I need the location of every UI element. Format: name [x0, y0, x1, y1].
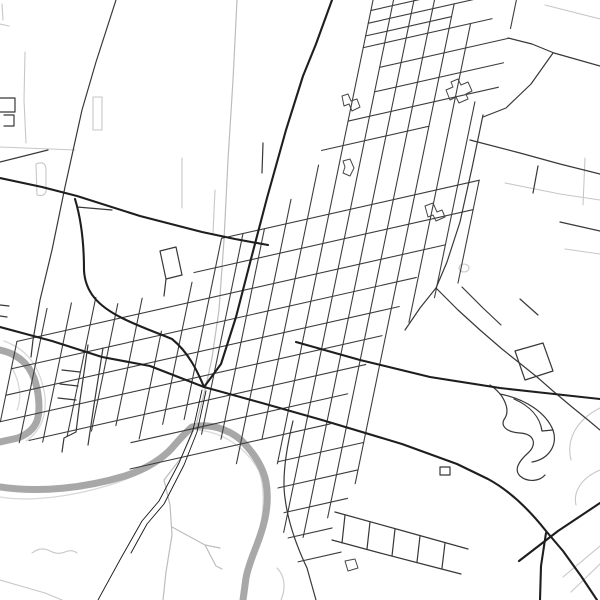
street-grid-street [236, 199, 291, 463]
med-roads-segment [500, 394, 554, 462]
med-roads-segment [0, 316, 7, 317]
major-roads-segment [519, 503, 600, 561]
med-roads-segment [520, 299, 538, 315]
minor-roads-segment [277, 568, 284, 600]
med-roads-segment [392, 529, 395, 556]
minor-roads-segment [505, 183, 600, 200]
building-outlines-segment [446, 79, 472, 103]
med-roads-segment [470, 140, 600, 174]
med-roads-segment [514, 399, 553, 431]
waterbank-segment [12, 368, 20, 410]
med-roads-segment [367, 522, 370, 549]
street-grid-street [17, 245, 445, 342]
minor-roads-segment [565, 249, 600, 254]
med-roads-segment [560, 222, 600, 231]
med-roads-segment [0, 305, 9, 306]
layer-minor-roads [0, 4, 600, 600]
minor-roads-segment [0, 24, 9, 26]
layer-major-roads [0, 0, 600, 600]
street-grid-street [288, 528, 332, 538]
minor-roads-segment [545, 5, 600, 19]
med-roads-segment [262, 143, 263, 173]
street-grid-street [322, 126, 429, 150]
street-grid-street [278, 442, 364, 461]
water-segment [0, 426, 267, 600]
med-roads-segment [442, 543, 445, 568]
street-grid-street [194, 210, 473, 273]
street-grid-street [278, 470, 358, 488]
med-roads-segment [58, 398, 76, 400]
med-roads-segment [77, 207, 112, 210]
minor-roads-segment [213, 190, 215, 233]
building-outlines-segment [342, 94, 360, 111]
map-poster [0, 0, 600, 600]
street-grid-street [92, 304, 118, 431]
minor-roads-segment [0, 580, 62, 600]
med-roads-segment [440, 467, 450, 475]
street-grid-street [380, 38, 509, 67]
building-outlines-segment [345, 559, 358, 571]
med-roads-segment [483, 53, 553, 117]
med-roads-segment [88, 348, 103, 445]
building-outlines-segment [425, 203, 445, 221]
layer-med-roads [0, 0, 600, 600]
light-roads-segment [172, 527, 220, 548]
med-roads-segment [60, 384, 78, 386]
major-roads-segment [0, 178, 268, 245]
med-roads-segment [62, 370, 80, 372]
minor-roads-segment [24, 52, 26, 143]
light-roads-segment [205, 545, 222, 569]
street-grid-street [284, 498, 347, 512]
street-grid-street [355, 4, 454, 484]
street-grid-street [366, 17, 452, 36]
street-grid-street [348, 87, 498, 121]
minor-roads-segment [36, 163, 46, 196]
street-grid-street [67, 297, 96, 436]
med-roads-segment [31, 0, 116, 357]
med-roads-segment [332, 540, 461, 574]
minor-roads-segment [32, 549, 77, 553]
med-roads-segment [164, 279, 166, 296]
street-grid-street [11, 278, 416, 369]
med-roads-segment [335, 512, 468, 549]
street-grid-street [262, 165, 319, 439]
street-grid-street [221, 229, 264, 439]
building-outlines-segment [343, 159, 354, 176]
minor-roads-segment [93, 97, 102, 130]
street-grid-street [43, 303, 72, 442]
street-grid-street [139, 331, 161, 439]
med-roads-segment [508, 38, 600, 66]
med-roads-segment [342, 515, 345, 543]
med-roads-segment [0, 98, 15, 112]
street-grid-street [375, 63, 504, 92]
layer-waterbank [0, 341, 263, 585]
minor-roads-segment [575, 470, 600, 505]
street-grid-street [0, 336, 382, 422]
minor-roads-segment [563, 546, 600, 577]
street-grid-street [371, 0, 435, 11]
minor-roads-segment [0, 147, 75, 150]
street-grid-street [409, 24, 471, 323]
med-roads-segment [160, 247, 182, 279]
med-roads-segment [284, 421, 316, 600]
street-grid-street [368, 0, 475, 23]
med-roads-segment [4, 115, 14, 126]
med-roads-segment [0, 150, 48, 162]
street-grid-street [363, 19, 492, 48]
street-grid-street [298, 552, 341, 562]
med-roads-segment [417, 536, 420, 562]
map-canvas [0, 0, 600, 600]
minor-roads-segment [2, 4, 3, 20]
street-grid-street [510, 0, 524, 29]
street-grid-street [277, 0, 375, 464]
minor-roads-segment [570, 408, 600, 460]
street-grid-street [222, 180, 480, 238]
med-roads-segment [405, 288, 436, 330]
